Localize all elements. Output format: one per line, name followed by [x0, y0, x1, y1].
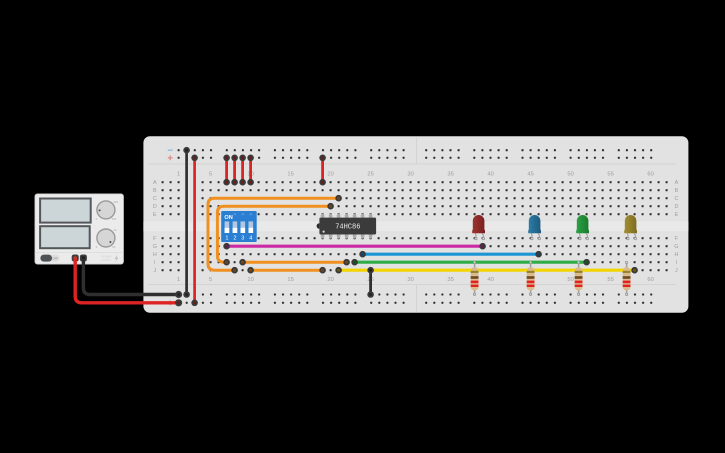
svg-text:A: A: [153, 180, 157, 186]
svg-text:1: 1: [225, 236, 228, 242]
svg-text:20: 20: [327, 277, 333, 283]
svg-text:I: I: [154, 260, 156, 266]
svg-text:25: 25: [367, 171, 373, 177]
svg-text:B: B: [153, 188, 157, 194]
svg-text:35: 35: [447, 277, 453, 283]
svg-text:I: I: [676, 260, 678, 266]
svg-text:1: 1: [177, 171, 180, 177]
svg-text:A: A: [675, 180, 679, 186]
svg-text:G: G: [153, 244, 157, 250]
svg-text:2: 2: [233, 236, 236, 242]
svg-text:C: C: [674, 196, 678, 202]
svg-text:50: 50: [567, 171, 573, 177]
svg-text:D: D: [153, 204, 157, 210]
svg-text:60: 60: [647, 277, 653, 283]
svg-text:4: 4: [249, 236, 252, 242]
svg-text:3: 3: [241, 236, 244, 242]
svg-text:40: 40: [487, 277, 493, 283]
svg-text:POWER: POWER: [101, 254, 111, 258]
svg-text:55: 55: [607, 171, 613, 177]
svg-text:35: 35: [447, 171, 453, 177]
svg-text:C: C: [153, 196, 157, 202]
svg-text:E: E: [153, 212, 157, 218]
svg-text:15: 15: [287, 277, 293, 283]
svg-text:55: 55: [607, 277, 613, 283]
svg-text:SUPPLY: SUPPLY: [101, 258, 112, 262]
svg-text:40: 40: [487, 171, 493, 177]
svg-text:20: 20: [327, 171, 333, 177]
svg-text:E: E: [675, 212, 679, 218]
svg-text:D: D: [674, 204, 678, 210]
svg-text:G: G: [674, 244, 678, 250]
svg-text:45: 45: [527, 171, 533, 177]
svg-text:OFF: OFF: [52, 256, 58, 260]
svg-text:36V: 36V: [112, 217, 117, 221]
svg-text:50: 50: [567, 277, 573, 283]
svg-text:B: B: [675, 188, 679, 194]
svg-text:5: 5: [209, 171, 212, 177]
svg-text:J: J: [675, 268, 678, 274]
svg-text:60: 60: [647, 171, 653, 177]
svg-text:74HC86: 74HC86: [335, 224, 360, 232]
svg-text:H: H: [674, 252, 678, 258]
svg-text:30: 30: [407, 277, 413, 283]
svg-text:3A: 3A: [114, 228, 117, 232]
svg-text:5A: 5A: [112, 245, 115, 249]
svg-text:10: 10: [247, 277, 253, 283]
svg-text:5: 5: [209, 277, 212, 283]
svg-text:J: J: [153, 268, 156, 274]
svg-text:15: 15: [287, 171, 293, 177]
svg-text:ON: ON: [224, 215, 232, 221]
svg-text:1: 1: [177, 277, 180, 283]
svg-text:30V: 30V: [114, 200, 119, 204]
svg-text:30: 30: [407, 171, 413, 177]
svg-text:H: H: [153, 252, 157, 258]
